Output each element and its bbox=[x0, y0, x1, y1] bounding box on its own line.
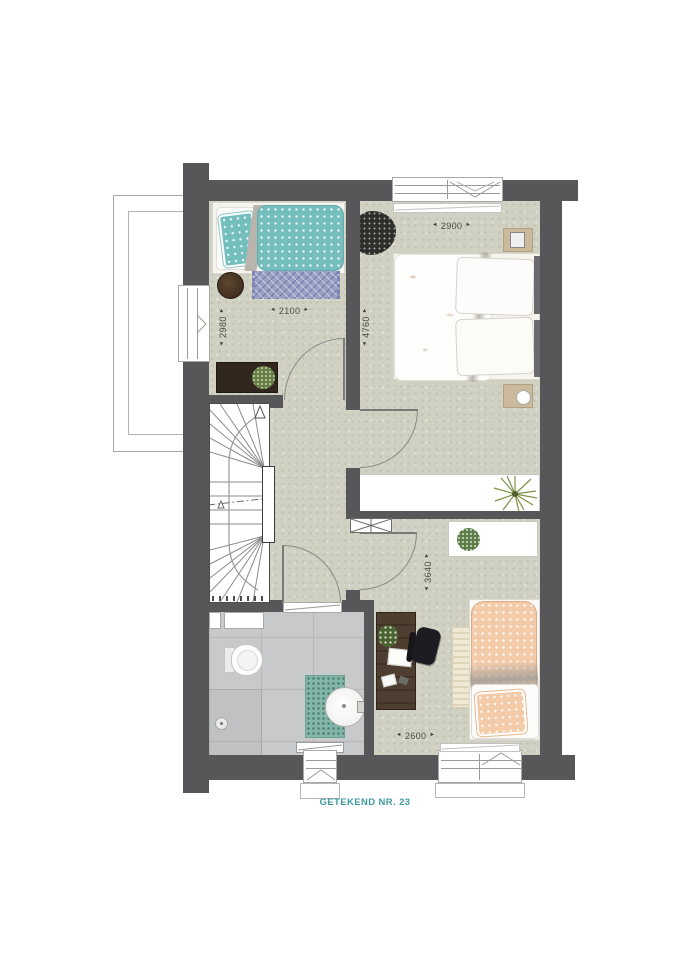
dim-arrow-icon: ◄ bbox=[220, 341, 226, 347]
window-top-vent bbox=[449, 179, 501, 200]
window-back-sill bbox=[435, 783, 525, 798]
dim-arrow-icon: ► bbox=[465, 223, 471, 229]
lamp bbox=[516, 390, 531, 405]
window-top bbox=[392, 177, 503, 202]
bath-niche-large bbox=[224, 612, 264, 629]
dim-value: 2600 bbox=[405, 731, 427, 741]
chair-seat bbox=[410, 626, 442, 667]
dim-arrow-icon: ◄ bbox=[270, 308, 276, 314]
dim-arrow-icon: ► bbox=[429, 733, 435, 739]
round-plant bbox=[457, 528, 480, 551]
sink bbox=[325, 687, 365, 727]
dim-arrow-icon: ► bbox=[220, 307, 226, 313]
toilet-seat bbox=[237, 650, 258, 671]
dim-arrow-icon: ► bbox=[363, 307, 369, 313]
orange-bed bbox=[469, 599, 540, 740]
dim-value: 2980 bbox=[218, 316, 228, 338]
left-wall bbox=[183, 163, 209, 793]
dim-master-depth: ◄ 4760 ► bbox=[361, 299, 371, 355]
kneewall-x bbox=[351, 519, 391, 532]
master-door-leaf bbox=[360, 409, 418, 411]
dim-back-width: ◄ 2600 ► bbox=[396, 731, 435, 741]
window-back-ledge bbox=[440, 743, 520, 752]
staircase bbox=[209, 403, 270, 603]
dim-arrow-icon: ► bbox=[303, 308, 309, 314]
dim-arrow-icon: ► bbox=[425, 552, 431, 558]
window-back-vent bbox=[481, 752, 521, 766]
dim-value: 4760 bbox=[361, 316, 371, 338]
window-top-divider bbox=[447, 180, 448, 199]
dim-value: 3640 bbox=[423, 561, 433, 583]
teal-bed bbox=[212, 202, 345, 274]
window-bath-vent bbox=[306, 769, 336, 781]
master-pillow-2 bbox=[455, 317, 535, 377]
kneewall-panel bbox=[350, 518, 392, 533]
window-back bbox=[438, 750, 522, 783]
dim-arrow-icon: ◄ bbox=[396, 733, 402, 739]
teal-bed-duvet bbox=[257, 205, 344, 271]
bath-door-panel-line bbox=[284, 603, 341, 612]
shower-drain bbox=[215, 717, 228, 730]
drain-dot bbox=[220, 722, 223, 725]
stair-handrail bbox=[262, 466, 275, 543]
stool bbox=[217, 272, 244, 299]
dim-master-width: ◄ 2900 ► bbox=[432, 221, 471, 231]
desk-plant bbox=[378, 625, 398, 647]
window-top-ledge-line bbox=[394, 204, 501, 212]
drawing-number-label: GETEKEND NR. 23 bbox=[270, 797, 460, 808]
orange-bed-pillow bbox=[475, 689, 528, 736]
nightstand-deco bbox=[510, 232, 525, 248]
window-left-vent bbox=[196, 314, 208, 334]
paper-small bbox=[381, 673, 397, 687]
window-left bbox=[178, 285, 210, 362]
sideboard-plant bbox=[252, 366, 275, 389]
dim-arrow-icon: ◄ bbox=[363, 341, 369, 347]
window-back-divider bbox=[479, 754, 480, 780]
dim-teal-depth: ◄ 2980 ► bbox=[218, 299, 228, 355]
desk-item bbox=[398, 676, 409, 685]
nightstand-top bbox=[503, 228, 533, 252]
stair-bottom-ticks bbox=[212, 596, 267, 601]
spiky-plant bbox=[493, 475, 537, 513]
bath-door-panel bbox=[283, 602, 342, 613]
window-top-ledge bbox=[393, 203, 502, 213]
dim-arrow-icon: ◄ bbox=[432, 223, 438, 229]
window-bath bbox=[303, 750, 337, 783]
master-pillow-1 bbox=[455, 257, 535, 317]
toilet bbox=[224, 644, 262, 674]
nightstand-bottom bbox=[503, 384, 533, 408]
bathroom-top-wall-right bbox=[342, 600, 374, 612]
bath-door-leaf bbox=[282, 545, 284, 603]
back-door-leaf bbox=[360, 532, 417, 534]
bathroom-right-wall bbox=[364, 612, 374, 755]
dim-arrow-icon: ◄ bbox=[425, 586, 431, 592]
dim-value: 2100 bbox=[279, 306, 301, 316]
desk-chair bbox=[406, 620, 444, 672]
floor-plan: ◄ 2100 ► ◄ 2980 ► ◄ 2900 ► ◄ 4760 ► ◄ 36… bbox=[0, 0, 679, 960]
dim-value: 2900 bbox=[441, 221, 463, 231]
master-bed bbox=[393, 253, 540, 380]
dim-back-depth: ◄ 3640 ► bbox=[423, 544, 433, 600]
window-left-line1 bbox=[187, 288, 188, 359]
back-wardrobe bbox=[448, 521, 538, 557]
right-wall bbox=[540, 201, 562, 755]
blue-rug bbox=[252, 271, 340, 299]
stair-treads bbox=[210, 404, 269, 602]
window-back-ledge-line bbox=[441, 744, 519, 751]
bottom-right-foot bbox=[540, 755, 575, 780]
bath-niche-small bbox=[209, 612, 221, 629]
window-back-line2 bbox=[441, 768, 521, 769]
roof-outline-inner bbox=[128, 211, 184, 435]
teal-door-leaf bbox=[343, 338, 345, 400]
dim-teal-width: ◄ 2100 ► bbox=[270, 306, 309, 316]
toilet-bowl bbox=[231, 644, 263, 676]
master-wardrobe bbox=[354, 474, 540, 512]
window-bath-line1 bbox=[306, 760, 336, 761]
sink-drain bbox=[342, 704, 346, 708]
divider-wall-upper bbox=[346, 201, 360, 410]
